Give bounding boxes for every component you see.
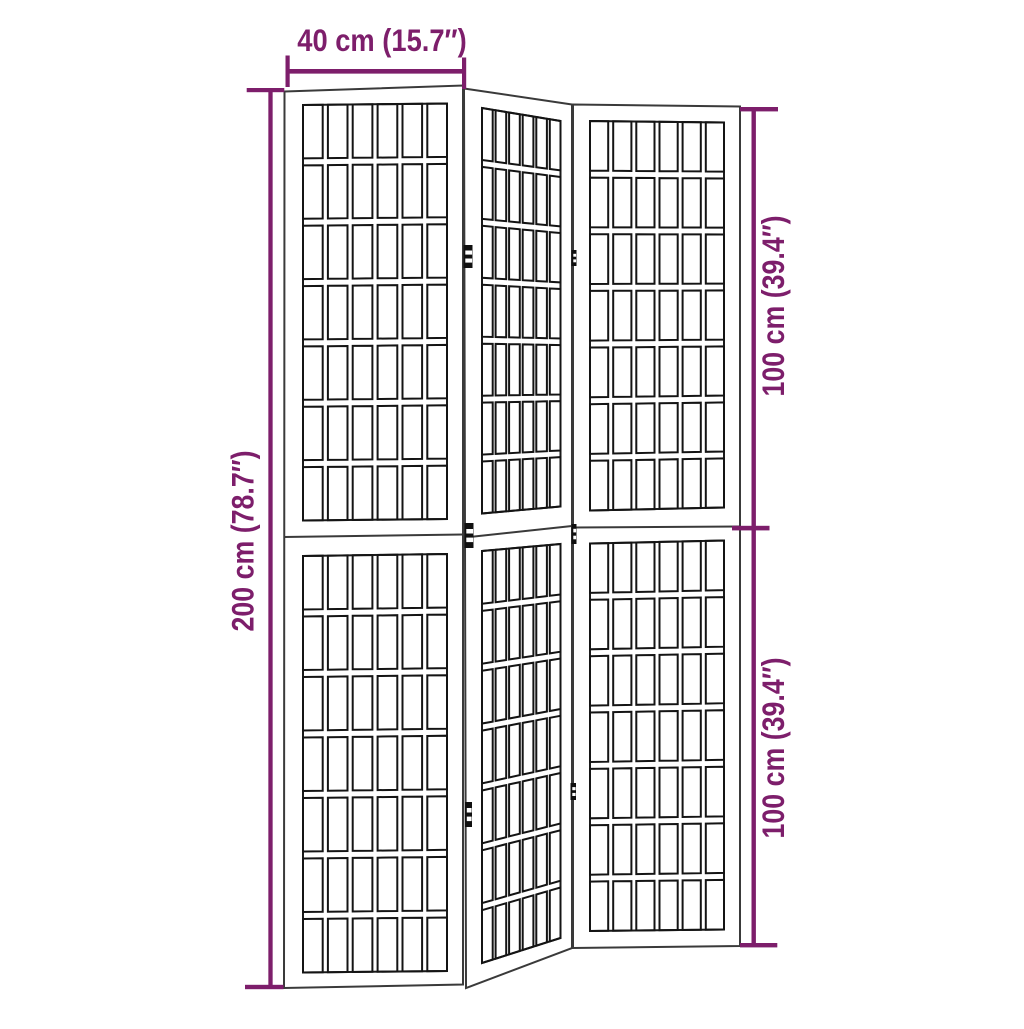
svg-text:100 cm (39.4″): 100 cm (39.4″) <box>755 658 791 839</box>
svg-text:40 cm (15.7″): 40 cm (15.7″) <box>297 22 467 58</box>
svg-text:100 cm (39.4″): 100 cm (39.4″) <box>755 216 791 397</box>
svg-text:200 cm (78.7″): 200 cm (78.7″) <box>225 451 261 632</box>
